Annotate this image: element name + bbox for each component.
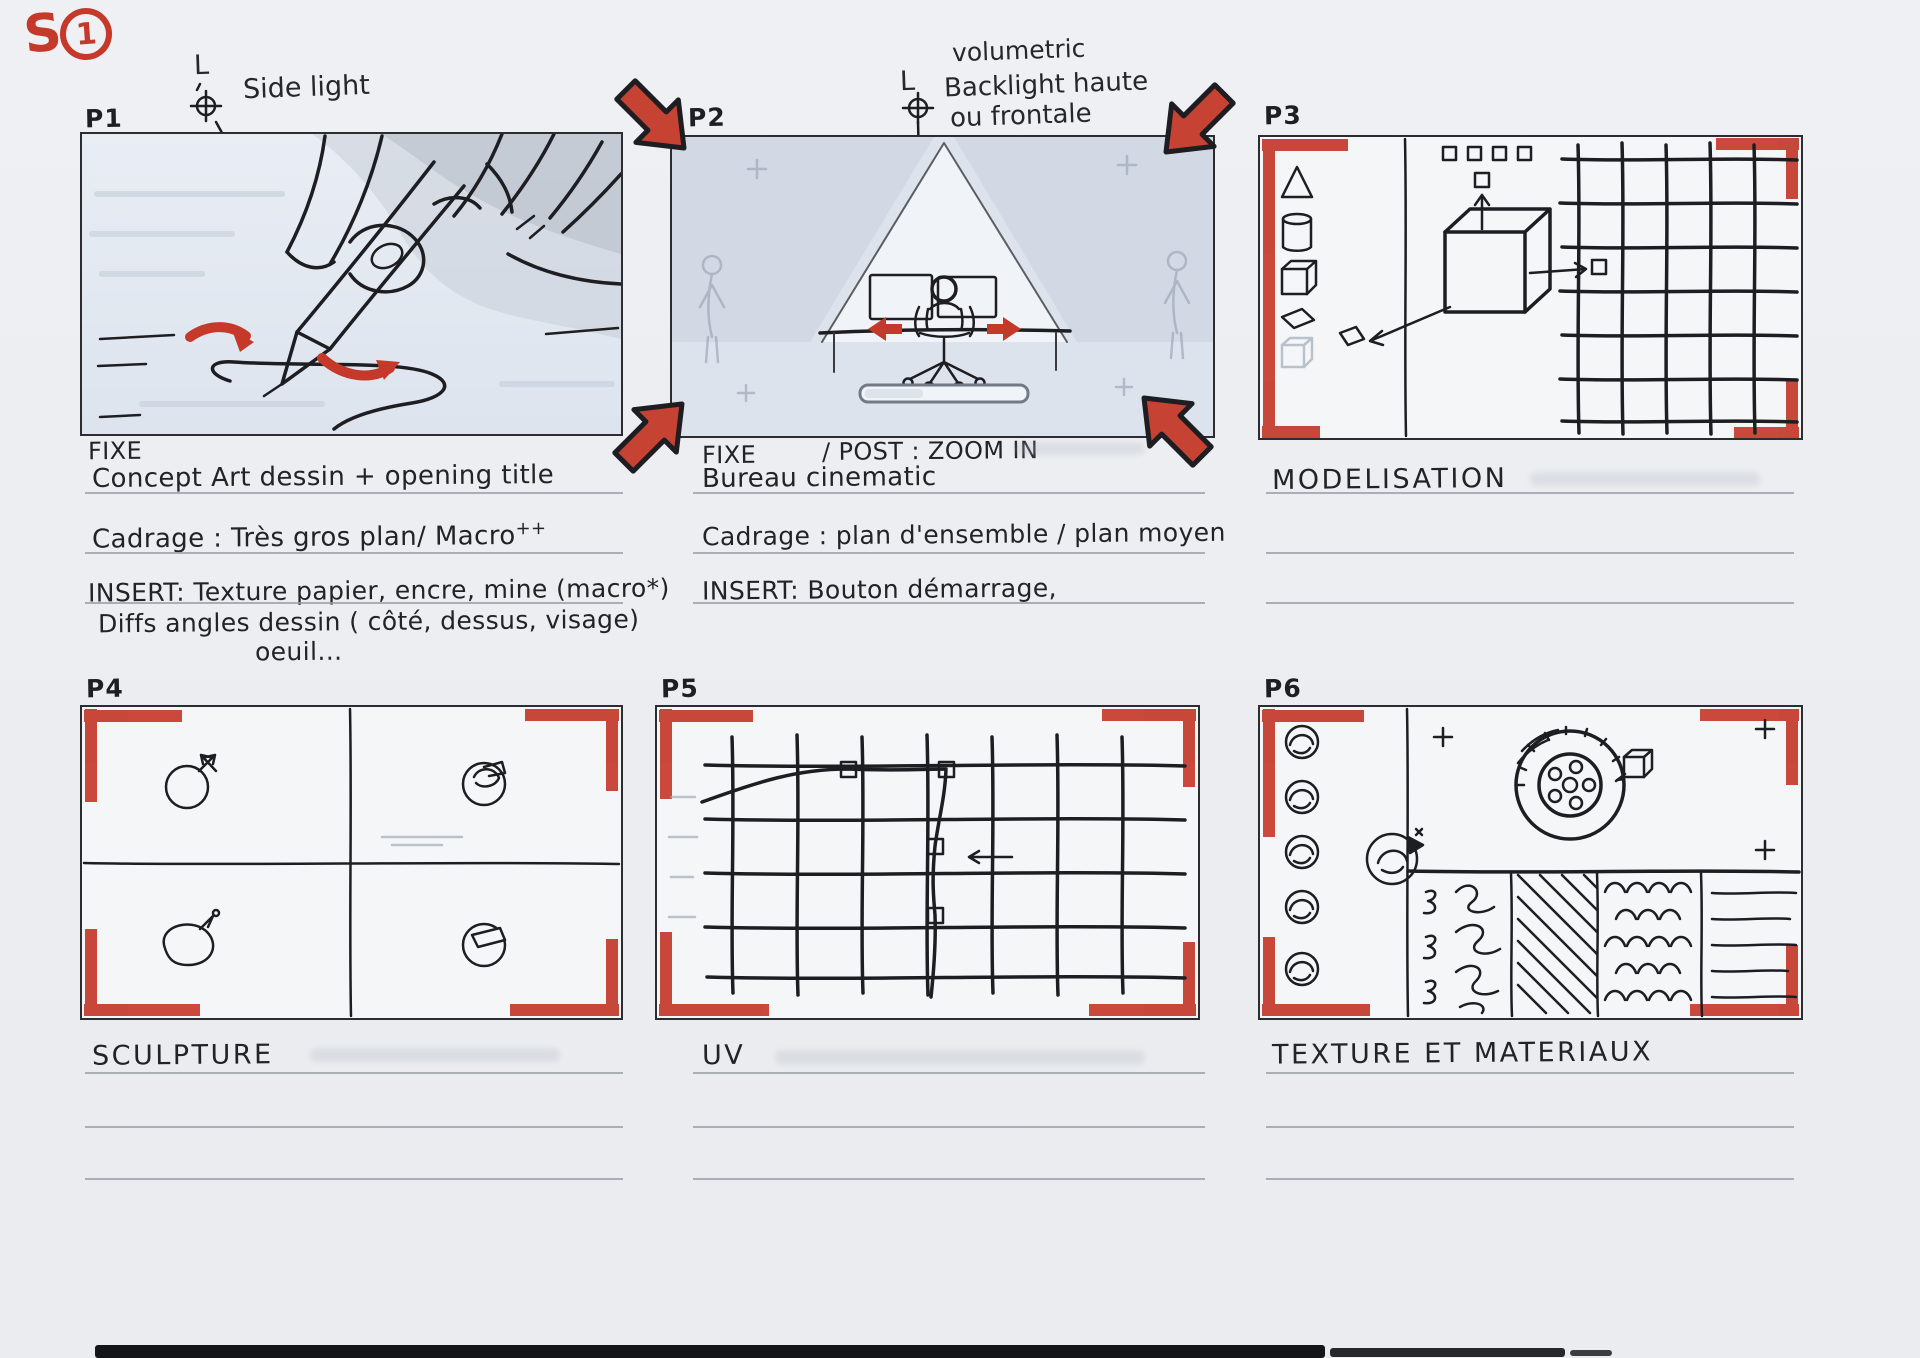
p2-caption-3: INSERT: Bouton démarrage,	[702, 573, 1057, 605]
sheet-number-circle: 1	[57, 5, 116, 64]
erased-pencil-text	[310, 1048, 560, 1062]
sculpt-tools-sketch	[82, 707, 621, 1018]
panel-label-p1: P1	[85, 104, 123, 134]
progress-bar-sketch	[860, 385, 1028, 402]
storyboard-panel-p4	[80, 705, 623, 1020]
ruled-line	[85, 1126, 623, 1128]
ruled-line	[85, 602, 623, 604]
p4-title: SCULPTURE	[92, 1039, 274, 1072]
p1-shot-type: FIXE	[88, 437, 142, 465]
p1-caption-1: Concept Art dessin + opening title	[92, 460, 554, 494]
p5-title: UV	[702, 1040, 746, 1071]
storyboard-panel-p1	[80, 132, 623, 436]
ruled-line	[1266, 1126, 1794, 1128]
toolbar-divider	[1405, 139, 1406, 436]
ruled-line	[85, 1178, 623, 1180]
ruled-line	[693, 1126, 1205, 1128]
p6-title: TEXTURE ET MATERIAUX	[1272, 1036, 1653, 1070]
erased-pencil-text	[1530, 472, 1760, 486]
zoom-arrow-top-right-icon	[1140, 68, 1250, 178]
storyboard-scan-page: { "colors": { "marker_red": "#c5392b", "…	[0, 0, 1920, 1358]
scan-edge-strip	[1570, 1350, 1612, 1356]
p2-light-note-2: Backlight haute	[944, 66, 1149, 103]
p1-caption-2-sup: ++	[515, 518, 546, 539]
erased-pencil-text	[775, 1050, 1145, 1065]
sheet-marker: S 1	[24, 4, 61, 64]
storyboard-panel-p3	[1258, 135, 1803, 440]
storyboard-panel-p6	[1258, 705, 1803, 1020]
zoom-arrow-top-left-icon	[600, 64, 710, 174]
p1-caption-4: Diffs angles dessin ( côté, dessus, visa…	[98, 605, 640, 639]
toolbar-divider	[1407, 709, 1408, 1016]
scan-edge-strip	[1330, 1348, 1565, 1357]
uv-grid-sketch	[657, 707, 1198, 1018]
p2-light-note-1: volumetric	[952, 34, 1086, 68]
sheet-letter: S	[21, 2, 65, 66]
panel-label-p5: P5	[661, 674, 699, 704]
zoom-arrow-bottom-right-icon	[1118, 372, 1228, 482]
ruled-line	[693, 1072, 1205, 1074]
p2-caption-2: Cadrage : plan d'ensemble / plan moyen	[702, 518, 1226, 552]
ruled-line	[1266, 602, 1794, 604]
ruled-line	[693, 602, 1205, 604]
hand-pen-sketch	[82, 134, 621, 434]
ruled-line	[693, 492, 1205, 494]
ruled-line	[1266, 1178, 1794, 1180]
ruled-line	[1266, 552, 1794, 554]
p1-caption-2: Cadrage : Très gros plan/ Macro++	[92, 518, 547, 555]
swatch-strip-divider	[1408, 871, 1799, 872]
erased-pencil-text	[1015, 442, 1145, 455]
ruled-line	[85, 1072, 623, 1074]
ruled-line	[85, 552, 623, 554]
p2-light-note-3: ou frontale	[950, 99, 1093, 134]
ruled-line	[1266, 492, 1794, 494]
modeling-ui-sketch	[1260, 137, 1801, 438]
storyboard-panel-p5	[655, 705, 1200, 1020]
panel-label-p6: P6	[1264, 674, 1302, 704]
scan-edge-strip	[95, 1345, 1325, 1358]
ruled-line	[85, 492, 623, 494]
zoom-arrow-bottom-left-icon	[598, 378, 708, 488]
ruled-line	[1266, 1072, 1794, 1074]
panel-label-p3: P3	[1264, 101, 1302, 131]
panel-label-p4: P4	[86, 674, 124, 704]
sheet-number: 1	[74, 16, 97, 52]
texture-materials-sketch	[1260, 707, 1801, 1018]
ruled-line	[693, 552, 1205, 554]
p1-caption-5: oeuil...	[255, 637, 343, 667]
ruled-line	[693, 1178, 1205, 1180]
p2-caption-1: Bureau cinematic	[702, 462, 937, 494]
